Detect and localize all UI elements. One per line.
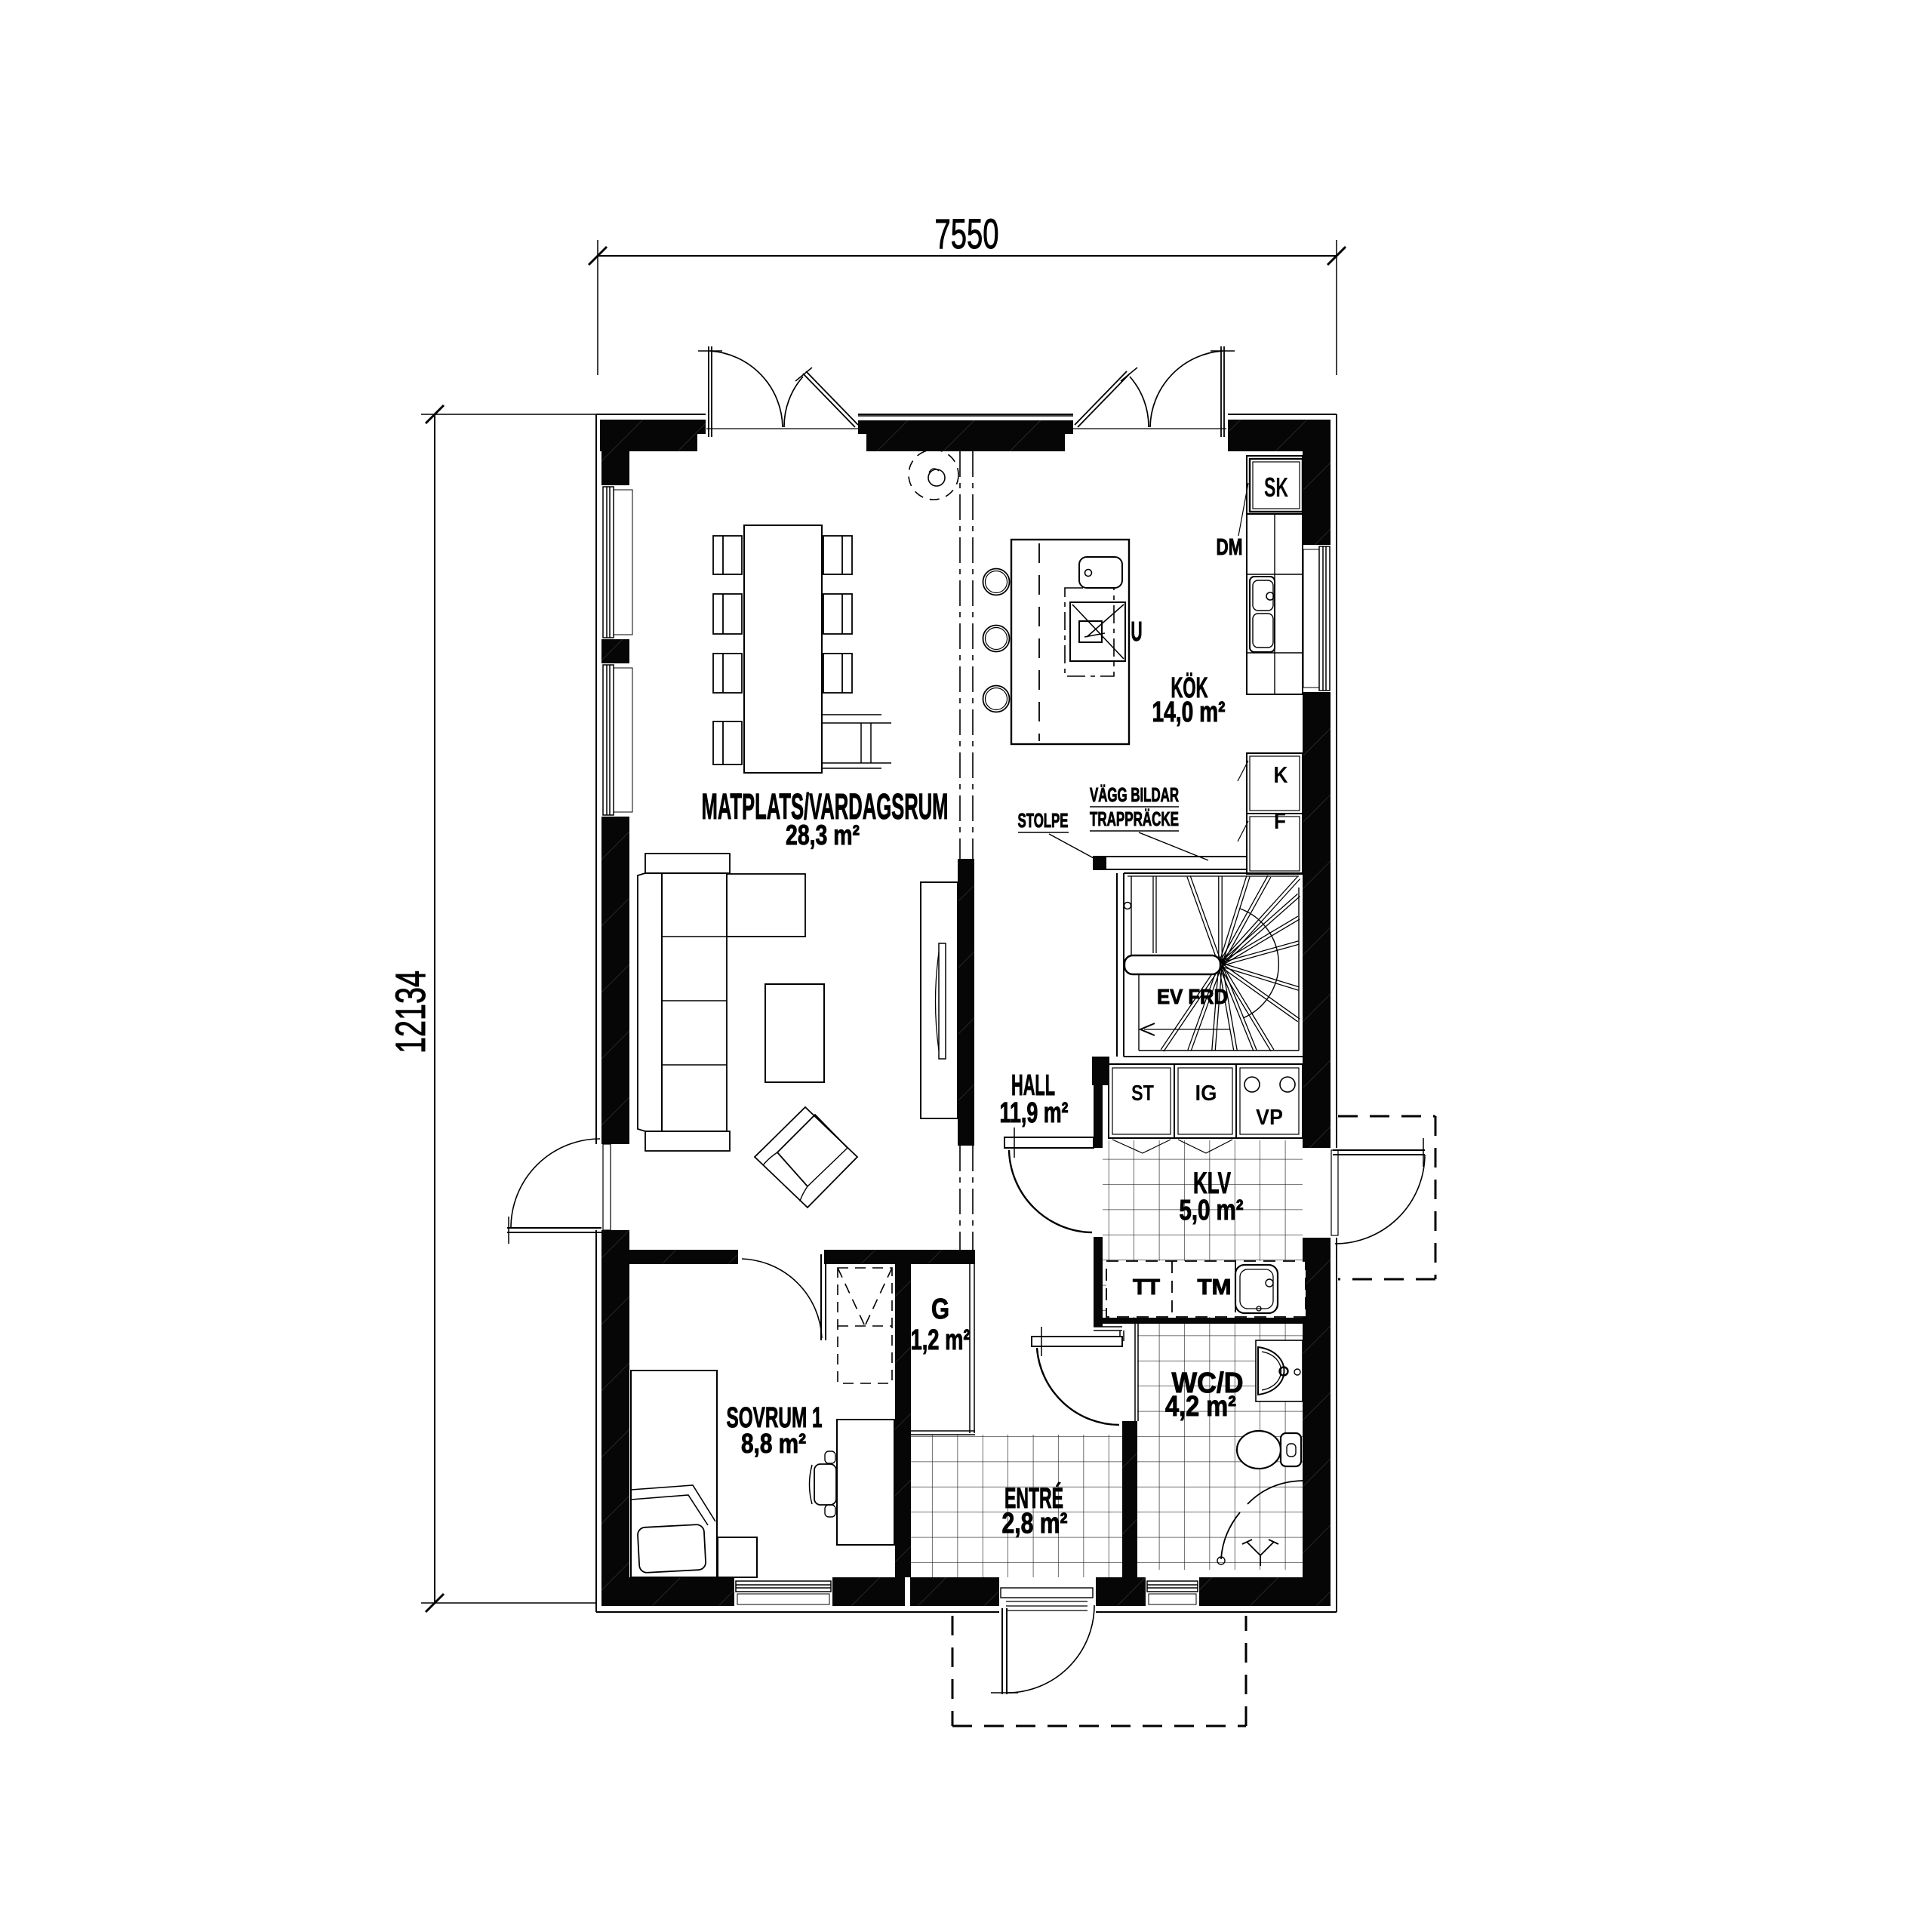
svg-text:IG: IG xyxy=(1195,1081,1217,1106)
svg-text:EV FRD: EV FRD xyxy=(1157,985,1228,1008)
svg-text:7550: 7550 xyxy=(935,210,999,257)
svg-text:VÄGG BILDAR: VÄGG BILDAR xyxy=(1090,783,1179,806)
svg-text:4,2 m²: 4,2 m² xyxy=(1165,1391,1236,1423)
svg-text:28,3 m²: 28,3 m² xyxy=(786,820,860,851)
svg-text:TT: TT xyxy=(1133,1275,1160,1300)
svg-text:8,8 m²: 8,8 m² xyxy=(741,1428,806,1459)
svg-text:U: U xyxy=(1131,616,1143,647)
svg-text:1,2 m²: 1,2 m² xyxy=(911,1324,971,1356)
svg-text:5,0 m²: 5,0 m² xyxy=(1180,1195,1244,1226)
svg-text:12134: 12134 xyxy=(386,971,434,1054)
svg-text:TM: TM xyxy=(1198,1275,1232,1300)
svg-text:VP: VP xyxy=(1256,1106,1283,1130)
svg-text:F: F xyxy=(1274,808,1286,834)
svg-text:STOLPE: STOLPE xyxy=(1018,809,1069,832)
svg-text:ST: ST xyxy=(1131,1081,1154,1106)
svg-text:TRAPPRÄCKE: TRAPPRÄCKE xyxy=(1090,808,1179,830)
svg-text:G: G xyxy=(931,1294,949,1325)
svg-text:11,9 m²: 11,9 m² xyxy=(1000,1097,1069,1129)
svg-text:2,8 m²: 2,8 m² xyxy=(1002,1508,1068,1540)
svg-text:14,0 m²: 14,0 m² xyxy=(1152,697,1226,728)
svg-text:K: K xyxy=(1274,761,1289,788)
svg-text:DM: DM xyxy=(1217,534,1243,560)
svg-text:SK: SK xyxy=(1264,472,1288,503)
